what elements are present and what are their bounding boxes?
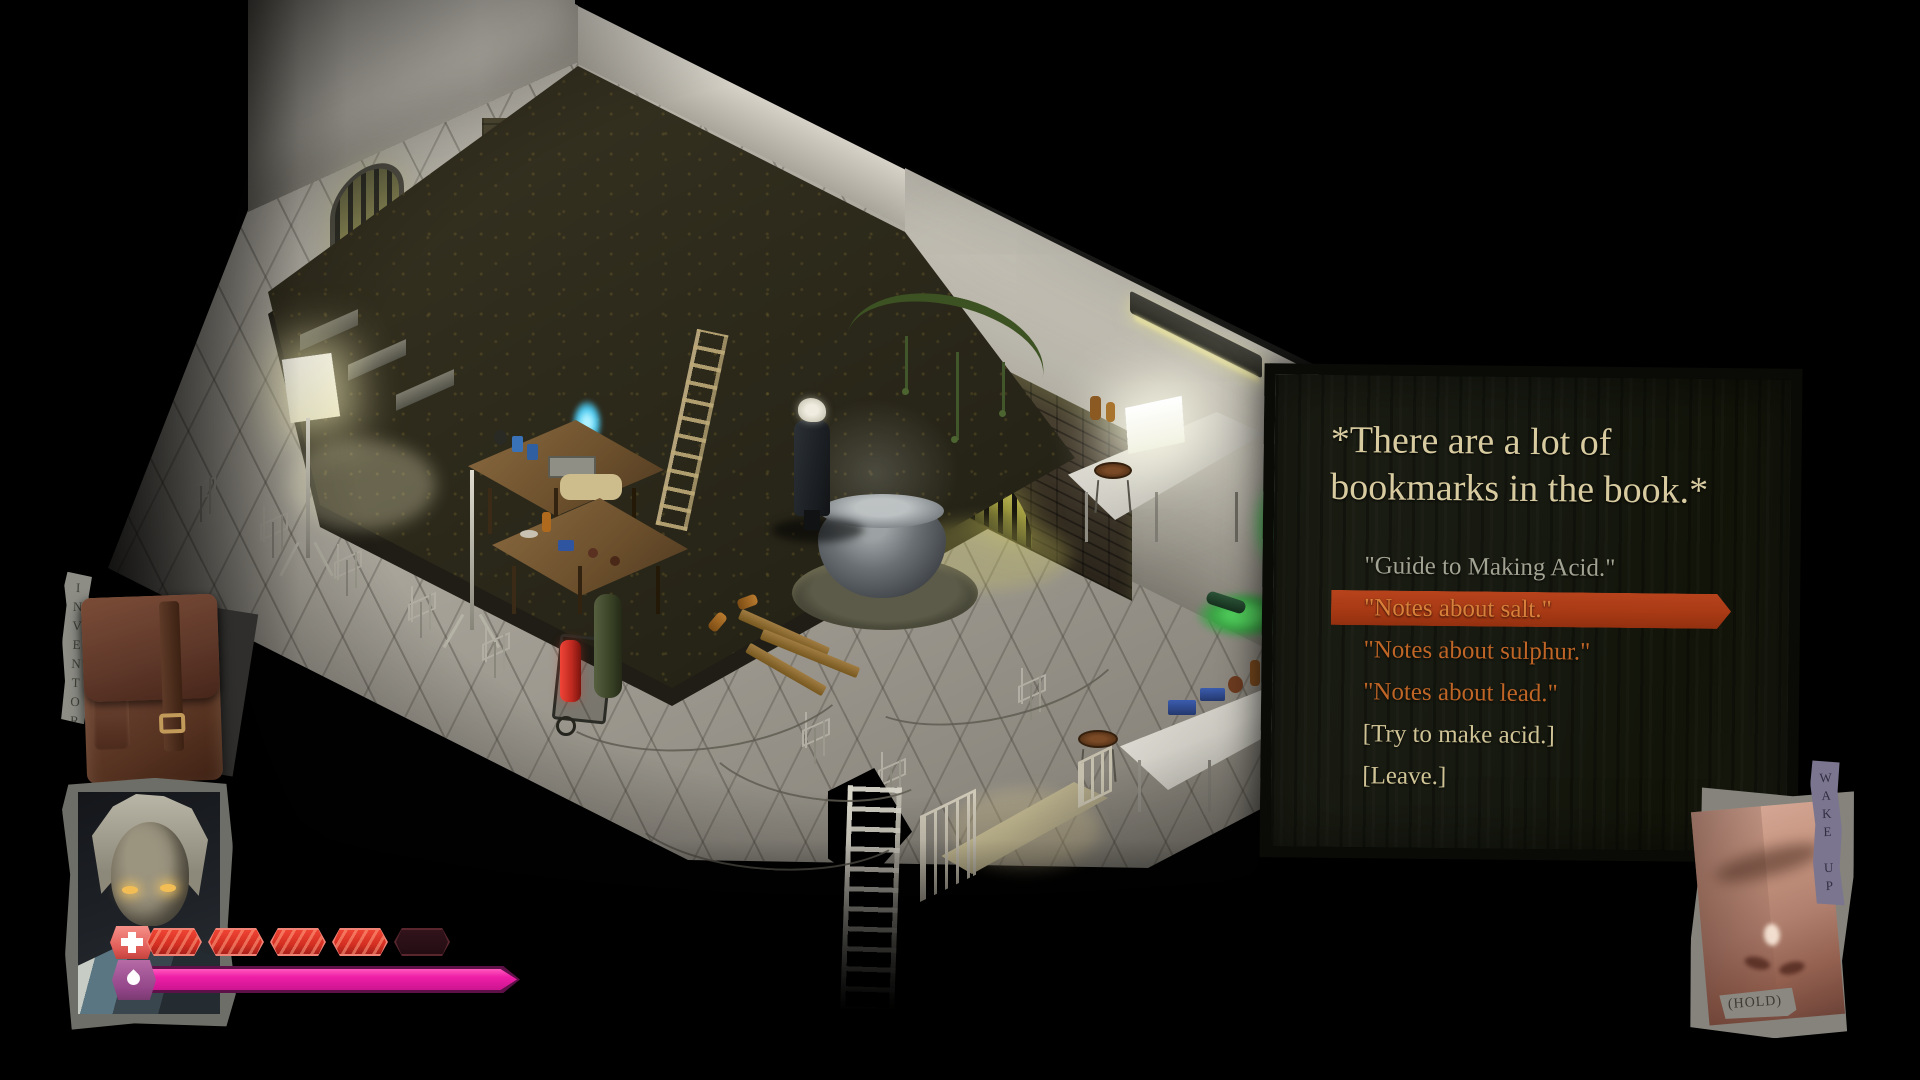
- dialogue-option-make-acid[interactable]: [Try to make acid.]: [1272, 712, 1788, 759]
- amber-bottle[interactable]: [1106, 402, 1115, 422]
- blue-can[interactable]: [527, 444, 538, 460]
- narration-line1: *There are a lot of: [1331, 417, 1612, 467]
- narration-text: *There are a lot of bookmarks in the boo…: [1331, 417, 1771, 469]
- vine-strand: [956, 352, 959, 440]
- droplet-bar-fill: [151, 969, 517, 990]
- vine-strand: [905, 336, 908, 392]
- stool[interactable]: [1094, 462, 1132, 479]
- dialogue-panel: *There are a lot of bookmarks in the boo…: [1259, 363, 1802, 863]
- table-legs: [512, 566, 662, 614]
- dialogue-option-salt[interactable]: "Notes about salt.": [1273, 586, 1789, 633]
- option-label: "Notes about salt.": [1364, 593, 1552, 625]
- tripod-stand[interactable]: [470, 470, 474, 630]
- glowing-eye-left: [122, 886, 138, 894]
- folding-chair[interactable]: [186, 470, 216, 506]
- photo-nostril: [1778, 959, 1806, 977]
- cup[interactable]: [588, 548, 598, 558]
- health-segment: [208, 928, 264, 956]
- folding-chair[interactable]: [480, 626, 510, 662]
- droplet-icon: [112, 960, 156, 1000]
- option-label: "Guide to Making Acid.": [1364, 551, 1615, 584]
- amber-bottle[interactable]: [542, 512, 551, 532]
- dialogue-option-guide[interactable]: "Guide to Making Acid.": [1273, 544, 1789, 591]
- stool[interactable]: [1078, 730, 1118, 748]
- blue-tray[interactable]: [1200, 688, 1225, 701]
- health-segment: [270, 928, 326, 956]
- bowl[interactable]: [520, 530, 538, 538]
- inventory-satchel[interactable]: [81, 594, 223, 785]
- character-legs: [804, 510, 820, 530]
- character-hair: [798, 398, 826, 422]
- droplet-bar-track: [148, 966, 520, 993]
- wake-up-label: WAKE UP: [1817, 770, 1837, 896]
- light-stand-pole: [306, 418, 310, 558]
- character-coat: [794, 420, 830, 516]
- health-segment: [332, 928, 388, 956]
- dark-jar[interactable]: [494, 430, 507, 445]
- option-label: "Notes about sulphur.": [1363, 635, 1590, 667]
- droplet-bar: [112, 960, 552, 1002]
- health-bar: [108, 924, 528, 962]
- game-screen: *There are a lot of bookmarks in the boo…: [0, 0, 1920, 1080]
- softbox-light[interactable]: [282, 353, 340, 423]
- amber-bottle[interactable]: [1250, 660, 1260, 686]
- dialogue-option-sulphur[interactable]: "Notes about sulphur.": [1272, 628, 1788, 675]
- option-label: "Notes about lead.": [1363, 677, 1558, 709]
- satchel-flap: [81, 594, 221, 703]
- option-label: [Try to make acid.]: [1363, 719, 1555, 751]
- vine-leaf: [902, 388, 909, 395]
- portrait-face: [111, 822, 189, 926]
- health-segment-empty: [394, 928, 450, 956]
- glowing-eye-right: [160, 884, 176, 892]
- blue-pack[interactable]: [558, 540, 574, 551]
- blue-can[interactable]: [512, 436, 523, 452]
- hold-label: (HOLD): [1727, 993, 1782, 1013]
- cloth-bundle[interactable]: [560, 474, 622, 500]
- clay-jar[interactable]: [1228, 676, 1243, 693]
- health-segment: [146, 928, 202, 956]
- option-label: [Leave.]: [1362, 761, 1446, 792]
- narration-line2: bookmarks in the book.*: [1330, 464, 1708, 515]
- player-character[interactable]: [786, 398, 838, 530]
- vine-leaf: [999, 410, 1006, 417]
- vine-strand: [1002, 362, 1005, 414]
- satchel-buckle: [159, 713, 186, 734]
- cup[interactable]: [610, 556, 620, 566]
- amber-bottle[interactable]: [1090, 396, 1101, 420]
- folding-chair[interactable]: [406, 586, 436, 622]
- folding-chair[interactable]: [258, 506, 288, 542]
- dialogue-option-lead[interactable]: "Notes about lead.": [1272, 670, 1788, 717]
- stool-legs: [1094, 480, 1131, 513]
- dialogue-options: "Guide to Making Acid." "Notes about sal…: [1271, 544, 1790, 801]
- folding-chair[interactable]: [332, 544, 362, 580]
- blue-tray[interactable]: [1168, 700, 1196, 715]
